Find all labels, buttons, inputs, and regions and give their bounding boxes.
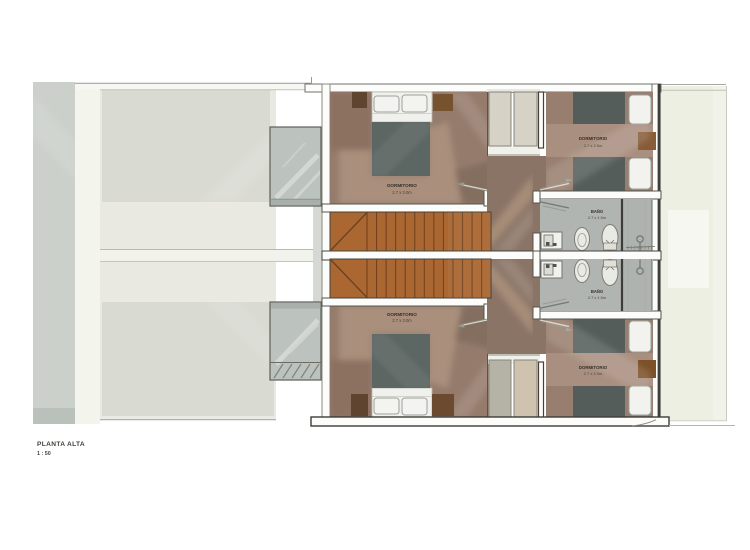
svg-text:2.7 x 2.0m: 2.7 x 2.0m bbox=[584, 371, 603, 376]
svg-text:DORMITORIO: DORMITORIO bbox=[579, 365, 608, 370]
svg-text:2.7 x 2.0m: 2.7 x 2.0m bbox=[584, 143, 603, 148]
svg-text:BAÑO: BAÑO bbox=[591, 289, 604, 294]
svg-text:BAÑO: BAÑO bbox=[591, 209, 604, 214]
svg-text:DORMITORIO: DORMITORIO bbox=[579, 136, 608, 141]
svg-text:2.7 x 3.0m: 2.7 x 3.0m bbox=[392, 318, 412, 323]
svg-text:DORMITORIO: DORMITORIO bbox=[387, 312, 417, 317]
svg-text:2.7 x 1.5m: 2.7 x 1.5m bbox=[588, 215, 606, 220]
svg-text:DORMITORIO: DORMITORIO bbox=[387, 183, 417, 188]
svg-text:2.7 x 3.0m: 2.7 x 3.0m bbox=[392, 190, 412, 195]
svg-text:PLANTA ALTA: PLANTA ALTA bbox=[37, 441, 85, 448]
svg-text:1 : 50: 1 : 50 bbox=[37, 451, 51, 457]
svg-text:2.7 x 1.5m: 2.7 x 1.5m bbox=[588, 295, 606, 300]
